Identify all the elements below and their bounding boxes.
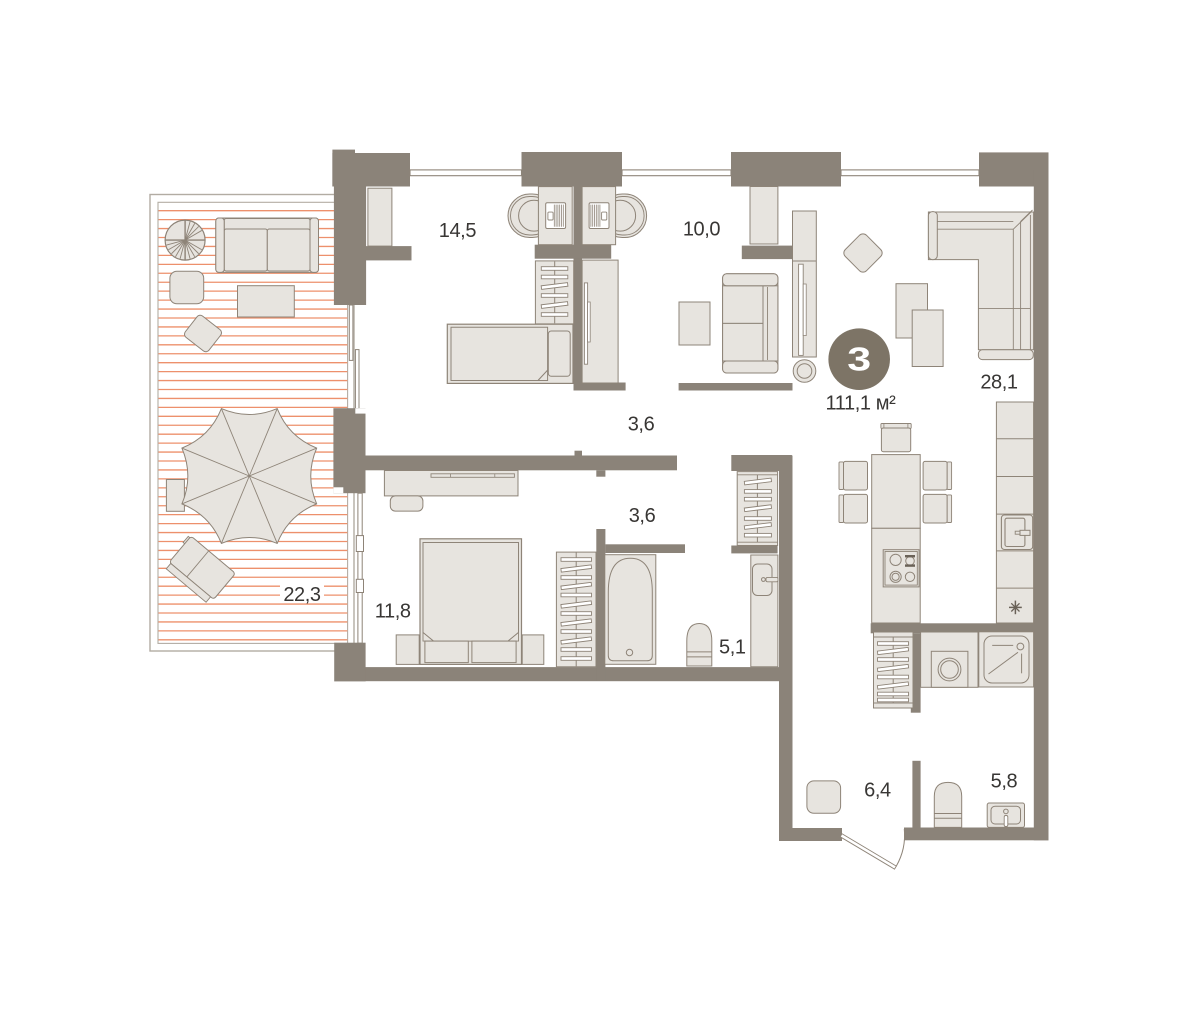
svg-text:22,3: 22,3 xyxy=(283,584,321,606)
svg-text:3,6: 3,6 xyxy=(628,413,655,435)
svg-text:3: 3 xyxy=(847,341,871,378)
svg-text:14,5: 14,5 xyxy=(439,220,477,242)
svg-text:6,4: 6,4 xyxy=(864,779,891,801)
svg-text:11,8: 11,8 xyxy=(375,600,411,622)
svg-text:10,0: 10,0 xyxy=(683,219,721,241)
svg-text:5,8: 5,8 xyxy=(991,771,1018,793)
svg-text:5,1: 5,1 xyxy=(719,636,746,658)
svg-text:3,6: 3,6 xyxy=(629,505,656,527)
svg-text:28,1: 28,1 xyxy=(980,372,1018,394)
svg-text:111,1 м²: 111,1 м² xyxy=(826,393,897,415)
